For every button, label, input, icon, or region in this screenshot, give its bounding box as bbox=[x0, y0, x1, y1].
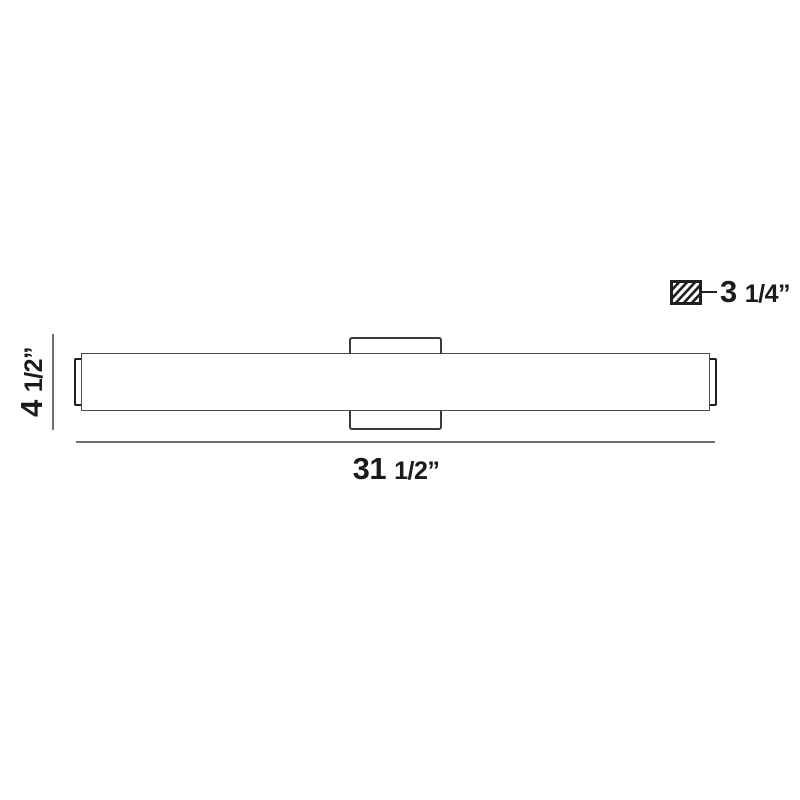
depth-leader-line bbox=[701, 291, 717, 293]
height-dimension-label: 4 1/2” bbox=[14, 332, 44, 432]
dimension-drawing: 4 1/2” 31 1/2” 3 1/4” bbox=[0, 0, 800, 800]
width-dimension-line bbox=[76, 441, 715, 443]
depth-dimension-fraction: 1/4” bbox=[745, 280, 790, 309]
fixture-body bbox=[81, 353, 710, 411]
width-dimension-label: 31 1/2” bbox=[296, 451, 496, 483]
width-dimension-fraction: 1/2” bbox=[394, 457, 439, 486]
height-dimension-line bbox=[52, 334, 54, 430]
height-dimension-whole: 4 bbox=[14, 400, 50, 417]
height-dimension-fraction: 1/2” bbox=[20, 347, 49, 392]
depth-hatch-icon bbox=[670, 280, 702, 305]
width-dimension-whole: 31 bbox=[353, 451, 386, 487]
depth-dimension-whole: 3 bbox=[720, 274, 737, 310]
depth-dimension-label: 3 1/4” bbox=[720, 274, 800, 306]
